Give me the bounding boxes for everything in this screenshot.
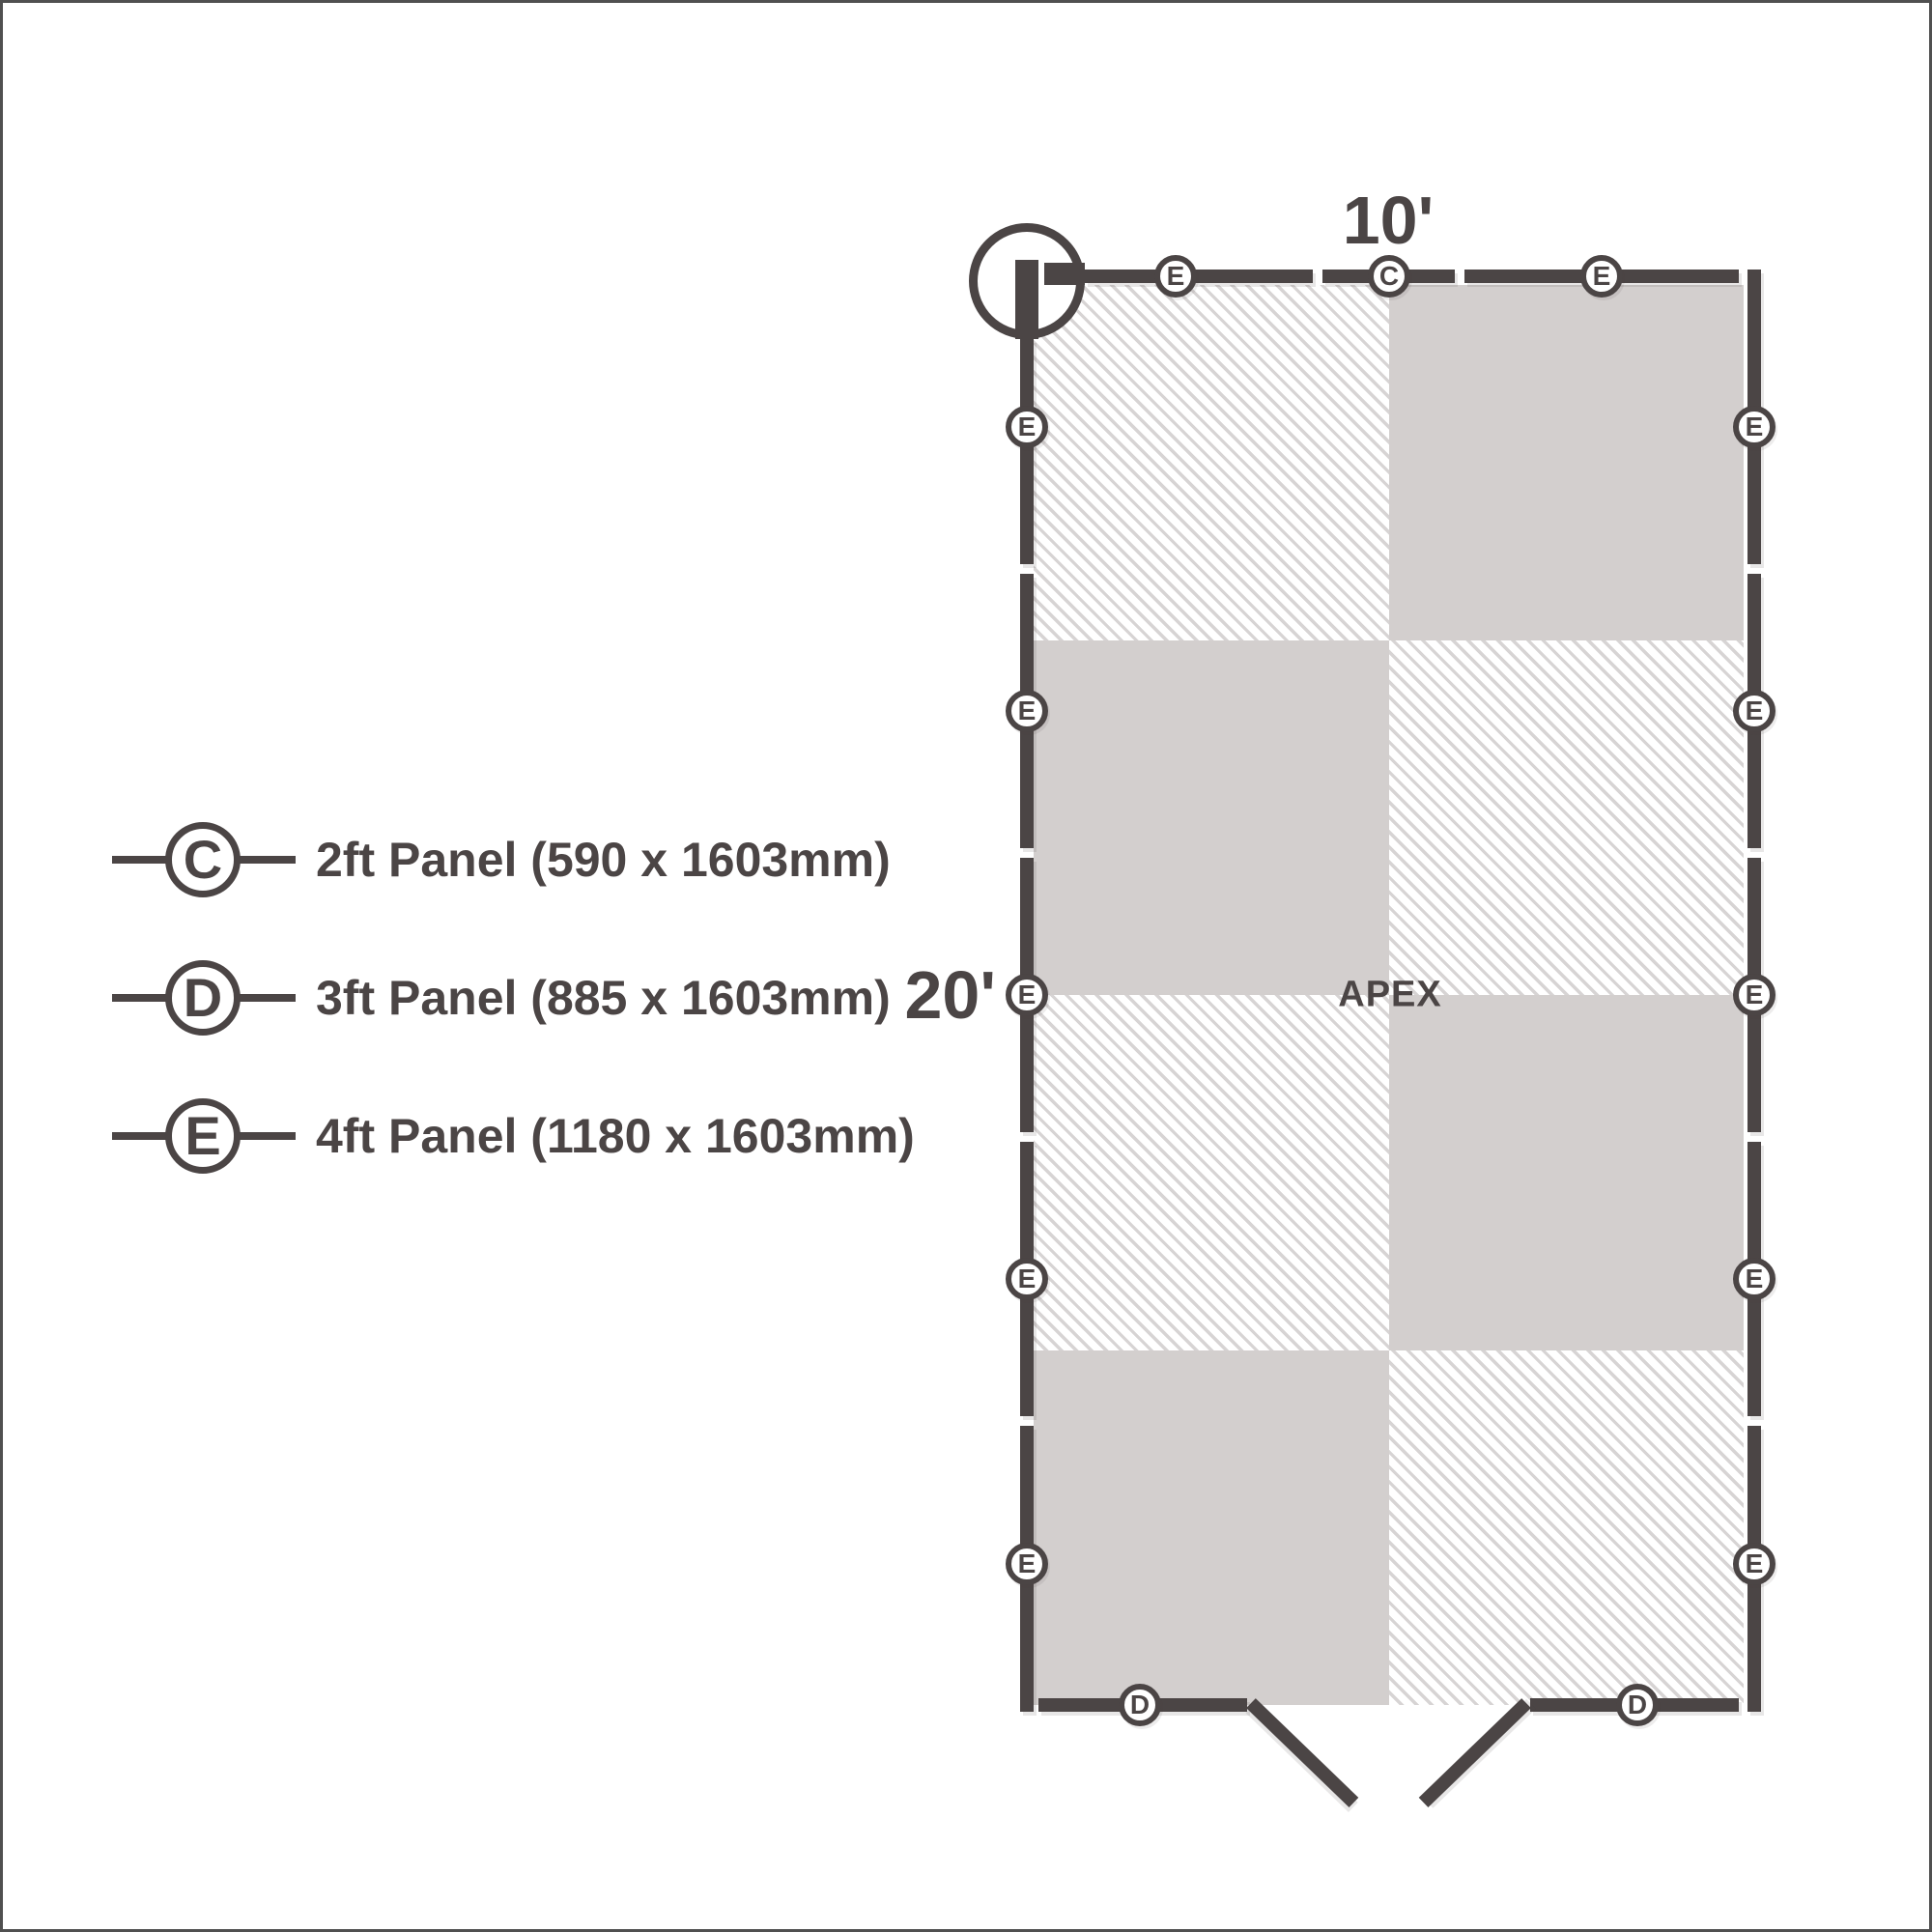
legend-label: 2ft Panel (590 x 1603mm) (302, 832, 891, 888)
legend-symbol-c: C (3, 821, 302, 898)
wall-segment-top (1085, 270, 1313, 283)
corner-junction-upright (1015, 260, 1038, 339)
panel-marker-e: E (1006, 1258, 1048, 1300)
legend-symbol-d: D (3, 959, 302, 1037)
door-leaf-right (1419, 1698, 1531, 1807)
dimension-label-width: 10' (1343, 186, 1435, 254)
dimension-label-length: 20' (904, 961, 996, 1029)
legend-item-e: E 4ft Panel (1180 x 1603mm) (3, 1097, 915, 1175)
panel-marker-e: E (1733, 406, 1776, 448)
panel-marker-d: D (1616, 1684, 1659, 1726)
panel-marker-e: E (1006, 974, 1048, 1016)
wall-segment-left (1020, 339, 1034, 564)
panel-marker-e: E (1733, 690, 1776, 732)
cell-hatched (1389, 640, 1744, 995)
panel-marker-e: E (1006, 406, 1048, 448)
panel-marker-e: E (1733, 1543, 1776, 1585)
panel-marker-icon: C (165, 822, 241, 897)
door-leaf-left (1246, 1698, 1358, 1807)
legend-label: 3ft Panel (885 x 1603mm) (302, 970, 891, 1026)
legend-item-d: D 3ft Panel (885 x 1603mm) (3, 959, 891, 1037)
panel-marker-d: D (1119, 1684, 1161, 1726)
panel-marker-icon: D (165, 960, 241, 1036)
panel-marker-e: E (1733, 1258, 1776, 1300)
panel-marker-e: E (1154, 255, 1197, 298)
cell-solid (1034, 640, 1389, 995)
cell-hatched (1389, 1350, 1744, 1705)
legend-symbol-e: E (3, 1097, 302, 1175)
corner-junction-rail (1044, 263, 1085, 285)
panel-marker-e: E (1006, 690, 1048, 732)
panel-marker-icon: E (165, 1098, 241, 1174)
floor-plan-diagram: C 2ft Panel (590 x 1603mm) D 3ft Panel (… (0, 0, 1932, 1932)
panel-marker-e: E (1006, 1543, 1048, 1585)
cell-hatched (1034, 285, 1389, 640)
cell-solid (1389, 285, 1744, 640)
legend-item-c: C 2ft Panel (590 x 1603mm) (3, 821, 891, 898)
cell-solid (1034, 1350, 1389, 1705)
cell-solid (1389, 995, 1744, 1350)
panel-marker-e: E (1733, 974, 1776, 1016)
legend-label: 4ft Panel (1180 x 1603mm) (302, 1108, 915, 1164)
panel-marker-c: C (1368, 255, 1410, 298)
apex-label: APEX (1338, 975, 1441, 1016)
panel-marker-e: E (1580, 255, 1623, 298)
cell-hatched (1034, 995, 1389, 1350)
